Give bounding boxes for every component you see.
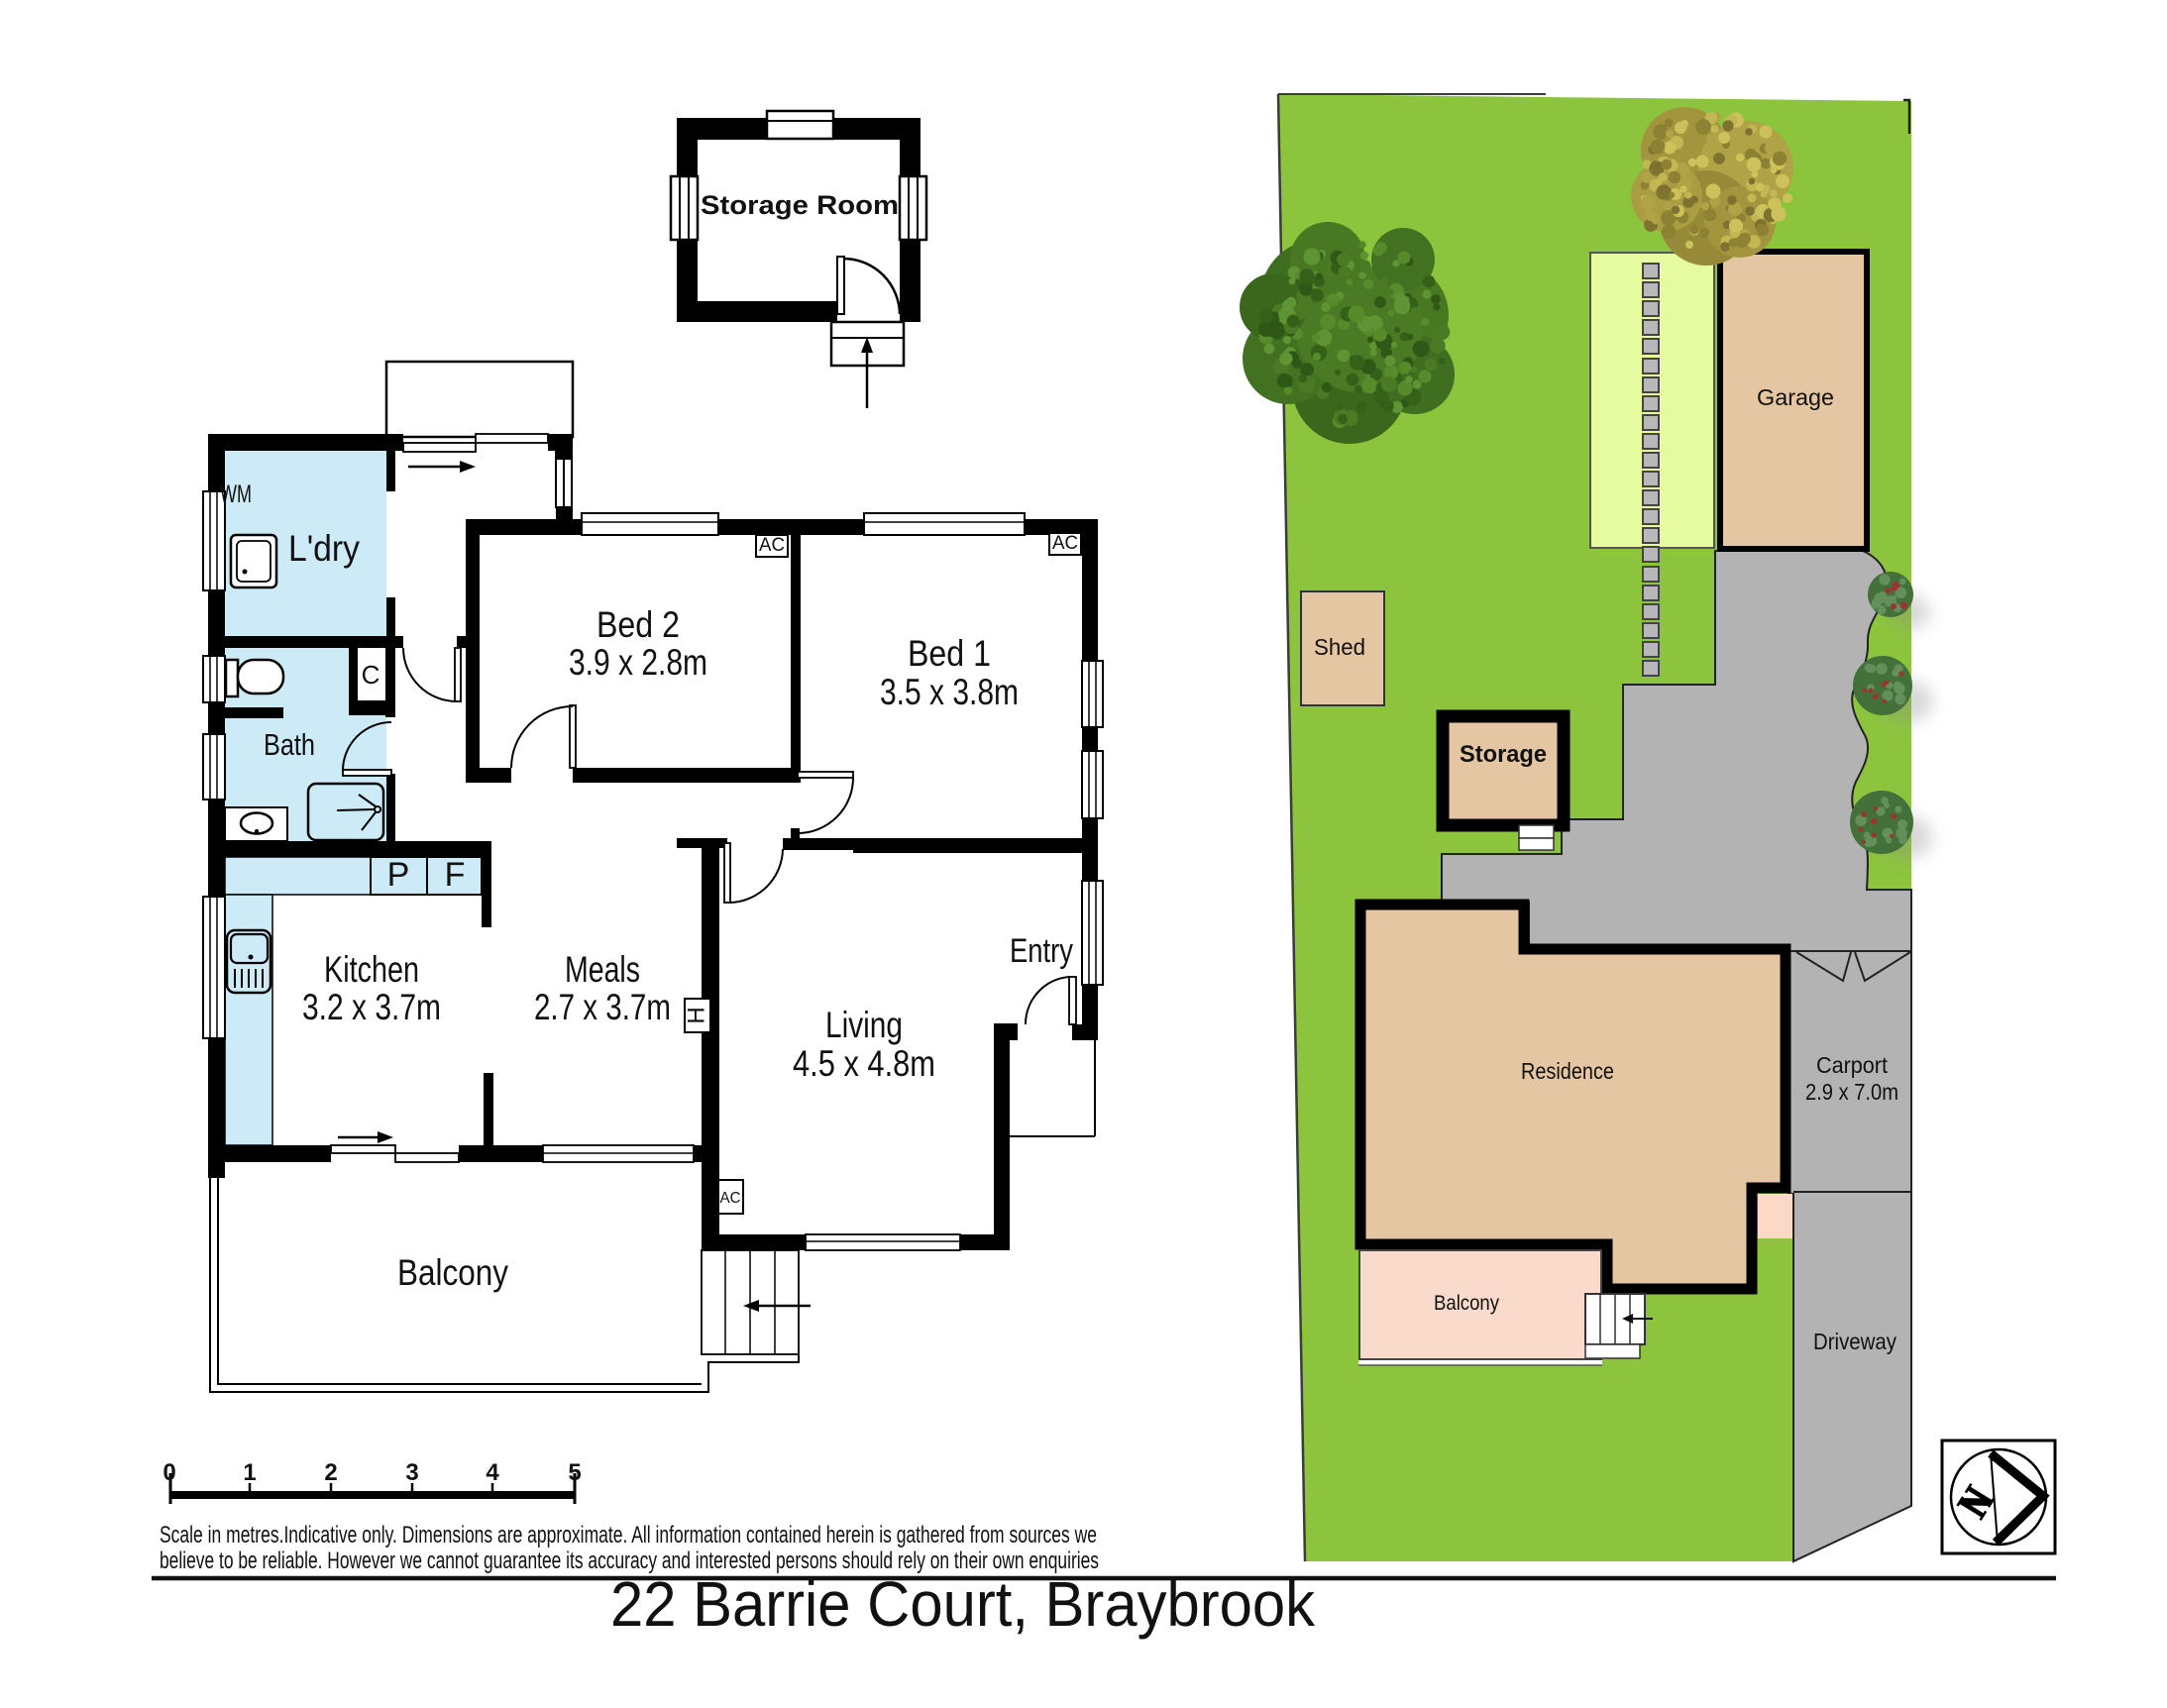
svg-text:0: 0 [163,1459,175,1486]
svg-text:4: 4 [486,1459,499,1486]
svg-text:2.7 x 3.7m: 2.7 x 3.7m [534,987,671,1027]
svg-text:Balcony: Balcony [397,1252,508,1293]
svg-text:Kitchen: Kitchen [324,949,419,990]
svg-text:Balcony: Balcony [1434,1292,1499,1315]
svg-text:H: H [683,1007,709,1023]
svg-text:3.9 x 2.8m: 3.9 x 2.8m [569,642,707,683]
svg-text:Residence: Residence [1521,1058,1614,1084]
svg-text:Bath: Bath [264,727,315,762]
svg-text:L'dry: L'dry [288,528,360,569]
svg-text:Storage: Storage [1460,741,1547,768]
svg-text:4.5 x 4.8m: 4.5 x 4.8m [793,1043,935,1084]
svg-text:Bed 2: Bed 2 [596,604,680,645]
svg-text:2: 2 [324,1459,337,1486]
svg-text:3: 3 [405,1459,418,1486]
svg-text:Storage Room: Storage Room [701,190,899,220]
svg-text:Scale in metres.Indicative onl: Scale in metres.Indicative only. Dimensi… [160,1522,1097,1548]
svg-text:Meals: Meals [565,949,640,990]
svg-text:3.5 x 3.8m: 3.5 x 3.8m [880,672,1019,712]
svg-text:Bed 1: Bed 1 [908,633,991,674]
svg-text:Garage: Garage [1757,384,1834,410]
svg-text:Entry: Entry [1010,932,1073,970]
svg-text:AC: AC [720,1190,741,1207]
svg-text:3.2 x 3.7m: 3.2 x 3.7m [302,987,441,1027]
svg-text:Carport: Carport [1816,1052,1889,1078]
svg-text:F: F [445,856,466,894]
svg-text:Shed: Shed [1314,634,1365,660]
svg-text:22 Barrie Court, Braybrook: 22 Barrie Court, Braybrook [610,1568,1316,1640]
svg-text:C: C [362,660,380,690]
svg-text:Driveway: Driveway [1813,1329,1896,1354]
svg-text:WM: WM [220,480,252,508]
svg-text:P: P [387,856,410,894]
svg-text:2.9 x 7.0m: 2.9 x 7.0m [1805,1079,1898,1105]
svg-text:1: 1 [243,1459,256,1486]
svg-text:5: 5 [568,1459,581,1486]
svg-text:AC: AC [1052,533,1078,554]
svg-text:AC: AC [759,535,785,556]
svg-text:Living: Living [825,1005,903,1045]
